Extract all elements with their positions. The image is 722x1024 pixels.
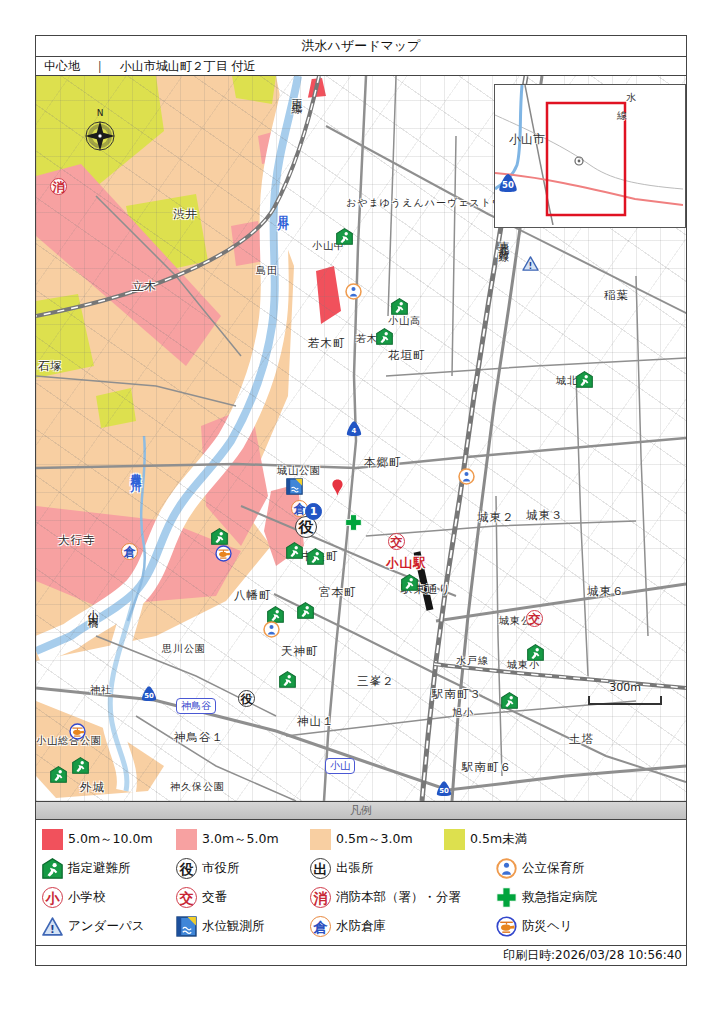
compass-rose: N [82, 106, 118, 158]
legend-item-label: 小学校 [68, 889, 106, 906]
svg-text:!: ! [50, 923, 55, 935]
map-label: 駅南町３ [432, 689, 482, 701]
cross-icon [345, 514, 362, 531]
underpass-icon: ! [42, 917, 63, 936]
map-label: 八幡町 [234, 590, 272, 602]
map-label: 小山高 [388, 316, 421, 326]
depth-label: 5.0m～10.0m [68, 831, 153, 848]
legend-item-shobo: 消消防本部（署）・分署 [310, 887, 496, 908]
map-label: 宮本町 [319, 587, 357, 599]
map-label: 三峯２ [357, 676, 395, 688]
kura-icon: 倉 [121, 543, 138, 560]
map-label: 城東３ [526, 510, 564, 522]
legend-item-label: 交番 [202, 889, 227, 906]
legend-depth-item: 0.5m～3.0m [310, 829, 444, 850]
legend-item-koban: 交交番 [176, 887, 310, 908]
map-label: 城東小 [507, 660, 540, 670]
heli-icon [215, 545, 232, 562]
map-label: 小山大橋 [88, 600, 99, 612]
depth-swatch [176, 829, 197, 850]
legend-icon-row: !アンダーパス水位観測所倉水防倉庫防災ヘリ [42, 912, 680, 941]
legend-item-shutcho: 出出張所 [310, 858, 496, 879]
inset-railline-char-bottom: 線 [617, 109, 627, 123]
map-label: 渋井 [173, 209, 198, 221]
hoiku-icon [263, 621, 280, 638]
legend-item-label: 指定避難所 [68, 860, 131, 877]
map-label: 島田 [256, 266, 278, 276]
legend-depth-item: 0.5m未満 [444, 829, 594, 850]
legend-item-label: 市役所 [202, 860, 240, 877]
page-title: 洪水ハザードマップ [35, 35, 687, 57]
map-label: 思川公園 [162, 644, 206, 654]
route-50-shield: 50 [140, 685, 158, 702]
legend-item-underpass: !アンダーパス [42, 917, 176, 936]
depth-swatch [444, 829, 465, 850]
map-label: 外城 [80, 782, 105, 794]
map-label: 花垣町 [388, 350, 426, 362]
koban-icon: 交 [388, 533, 405, 550]
map-label: 神山１ [297, 716, 335, 728]
inset-route-shield: 50 [499, 174, 516, 192]
map-label: 本郷町 [364, 457, 402, 469]
inset-geometry: 50 [495, 85, 683, 225]
map-label: 駅南町６ [462, 762, 512, 774]
map-label: 旭小 [452, 708, 474, 718]
shelter-icon [279, 671, 296, 688]
heli-icon [69, 723, 86, 740]
map-label: 立木 [132, 281, 157, 293]
legend-item-label: アンダーパス [68, 918, 144, 935]
yakusho-icon: 役 [176, 858, 197, 879]
print-datetime: 印刷日時:2026/03/28 10:56:40 [35, 945, 687, 966]
map-label: 城東２ [477, 512, 515, 524]
hoiku-icon [496, 858, 517, 879]
shobo-icon: 消 [50, 178, 67, 195]
map-label: 土塔 [569, 734, 594, 746]
shelter-icon [307, 548, 324, 565]
legend-depth-row: 5.0m～10.0m3.0m～5.0m0.5m～3.0m0.5m未満 [42, 825, 680, 854]
inset-city-label: 小山市 [509, 131, 545, 148]
map-label: 豊穂川 [130, 464, 141, 476]
shutcho-icon: 出 [310, 858, 331, 879]
depth-label: 0.5m～3.0m [336, 831, 413, 848]
legend-header: 凡例 [35, 801, 687, 820]
map-label: 城東６ [587, 586, 625, 598]
legend-icon-row: 小小学校交交番消消防本部（署）・分署救急指定病院 [42, 883, 680, 912]
locator-inset-map: 50 小山市 水 線 [494, 84, 686, 228]
center-value: 小山市城山町２丁目 付近 [120, 57, 256, 75]
road-name-box: 神鳥谷 [176, 698, 216, 714]
legend-item-label: 救急指定病院 [522, 889, 597, 906]
route-4-shield: 4 [345, 420, 363, 437]
center-label: 中心地 [44, 57, 80, 75]
balloon-icon [331, 479, 344, 496]
legend-item-label: 水防倉庫 [336, 918, 386, 935]
shobo-icon: 消 [310, 887, 331, 908]
compass-n-label: N [97, 108, 104, 118]
map-label: 稲葉 [604, 290, 629, 302]
map-label: 小山駅 [386, 557, 427, 570]
legend-item-shelter: 指定避難所 [42, 858, 176, 879]
hazard-map-sheet: 洪水ハザードマップ 中心地 ｜ 小山市城山町２丁目 付近 [35, 35, 687, 966]
legend-item-label: 消防本部（署）・分署 [336, 889, 461, 906]
map-label: 天神町 [281, 646, 319, 658]
scale-line [588, 696, 662, 705]
legend-body: 5.0m～10.0m3.0m～5.0m0.5m～3.0m0.5m未満 指定避難所… [35, 819, 687, 946]
map-label: 東北新幹線 [499, 232, 510, 247]
svg-text:50: 50 [439, 787, 449, 795]
shelter-icon [50, 766, 67, 783]
scale-bar: 300m [588, 676, 662, 705]
subtitle-bar: 中心地 ｜ 小山市城山町２丁目 付近 [35, 56, 687, 76]
subtitle-separator: ｜ [94, 57, 106, 75]
shogakko-icon: 小 [42, 887, 63, 908]
legend-item-yakusho: 役市役所 [176, 858, 310, 879]
shelter-icon [336, 228, 353, 245]
shelter-icon [297, 602, 314, 619]
legend-icon-rows: 指定避難所役市役所出出張所公立保育所小小学校交交番消消防本部（署）・分署救急指定… [42, 854, 680, 941]
gauge-icon [286, 478, 303, 495]
heli-icon [496, 916, 517, 937]
map-label: 石塚 [38, 361, 63, 373]
shelter-icon [286, 542, 303, 559]
map-label: 大行寺 [58, 535, 96, 547]
legend-item-shogakko: 小小学校 [42, 887, 176, 908]
legend-depth-item: 3.0m～5.0m [176, 829, 310, 850]
map-canvas: 渋井立木石塚両毛線思川おやまゆうえんハーヴェストウォーク小山中島田若木町小山高若… [35, 75, 687, 802]
inset-railline-char-top: 水 [626, 91, 636, 105]
svg-text:50: 50 [502, 180, 514, 190]
underpass-icon: ! [522, 256, 539, 271]
shelter-icon [211, 528, 228, 545]
legend-item-gauge: 水位観測所 [176, 916, 310, 937]
legend-item-kura: 倉水防倉庫 [310, 916, 496, 937]
legend-item-label: 出張所 [336, 860, 374, 877]
map-label: 若木町 [308, 338, 346, 350]
yakusho-icon: 役 [238, 690, 255, 707]
legend-item-label: 公立保育所 [522, 860, 585, 877]
shelter-icon [527, 644, 544, 661]
depth-label: 3.0m～5.0m [202, 831, 279, 848]
shelter-icon [501, 692, 518, 709]
cross-icon [496, 887, 517, 908]
legend-item-heli: 防災ヘリ [496, 916, 656, 937]
map-label: 水戸線 [456, 656, 489, 666]
depth-swatch [310, 829, 331, 850]
shelter-icon [376, 328, 393, 345]
inset-extent-rectangle [547, 103, 625, 215]
scale-label: 300m [609, 681, 641, 694]
svg-text:!: ! [529, 261, 533, 271]
legend-icon-row: 指定避難所役市役所出出張所公立保育所 [42, 854, 680, 883]
koban-icon: 交 [176, 887, 197, 908]
legend-item-cross: 救急指定病院 [496, 887, 656, 908]
shelter-icon [391, 298, 408, 315]
svg-text:4: 4 [352, 427, 357, 435]
hoiku-icon [458, 468, 475, 485]
depth-label: 0.5m未満 [470, 831, 527, 848]
gauge-icon [176, 916, 197, 937]
depth-swatch [42, 829, 63, 850]
map-label: 神久保公園 [170, 782, 225, 792]
road-name-box: 小山 [325, 758, 355, 774]
svg-text:50: 50 [144, 692, 154, 700]
shelter-icon [401, 574, 418, 591]
legend-item-label: 水位観測所 [202, 918, 265, 935]
map-label: 神社 [90, 685, 112, 695]
map-label: 神鳥谷１ [174, 732, 224, 744]
kura-icon: 倉 [310, 916, 331, 937]
legend-item-label: 防災ヘリ [522, 918, 573, 935]
map-label: 両毛線 [292, 90, 303, 99]
hoiku-icon [345, 283, 362, 300]
route1-icon: 1 [305, 503, 322, 520]
route-50-shield: 50 [435, 780, 453, 797]
shelter-icon [576, 371, 593, 388]
shelter-icon [42, 858, 63, 879]
map-label: 思川 [277, 206, 288, 214]
koban-icon: 交 [526, 610, 543, 627]
legend-item-hoiku: 公立保育所 [496, 858, 656, 879]
legend-depth-item: 5.0m～10.0m [42, 829, 176, 850]
shelter-icon [72, 757, 89, 774]
map-label: 城山公園 [277, 466, 321, 476]
